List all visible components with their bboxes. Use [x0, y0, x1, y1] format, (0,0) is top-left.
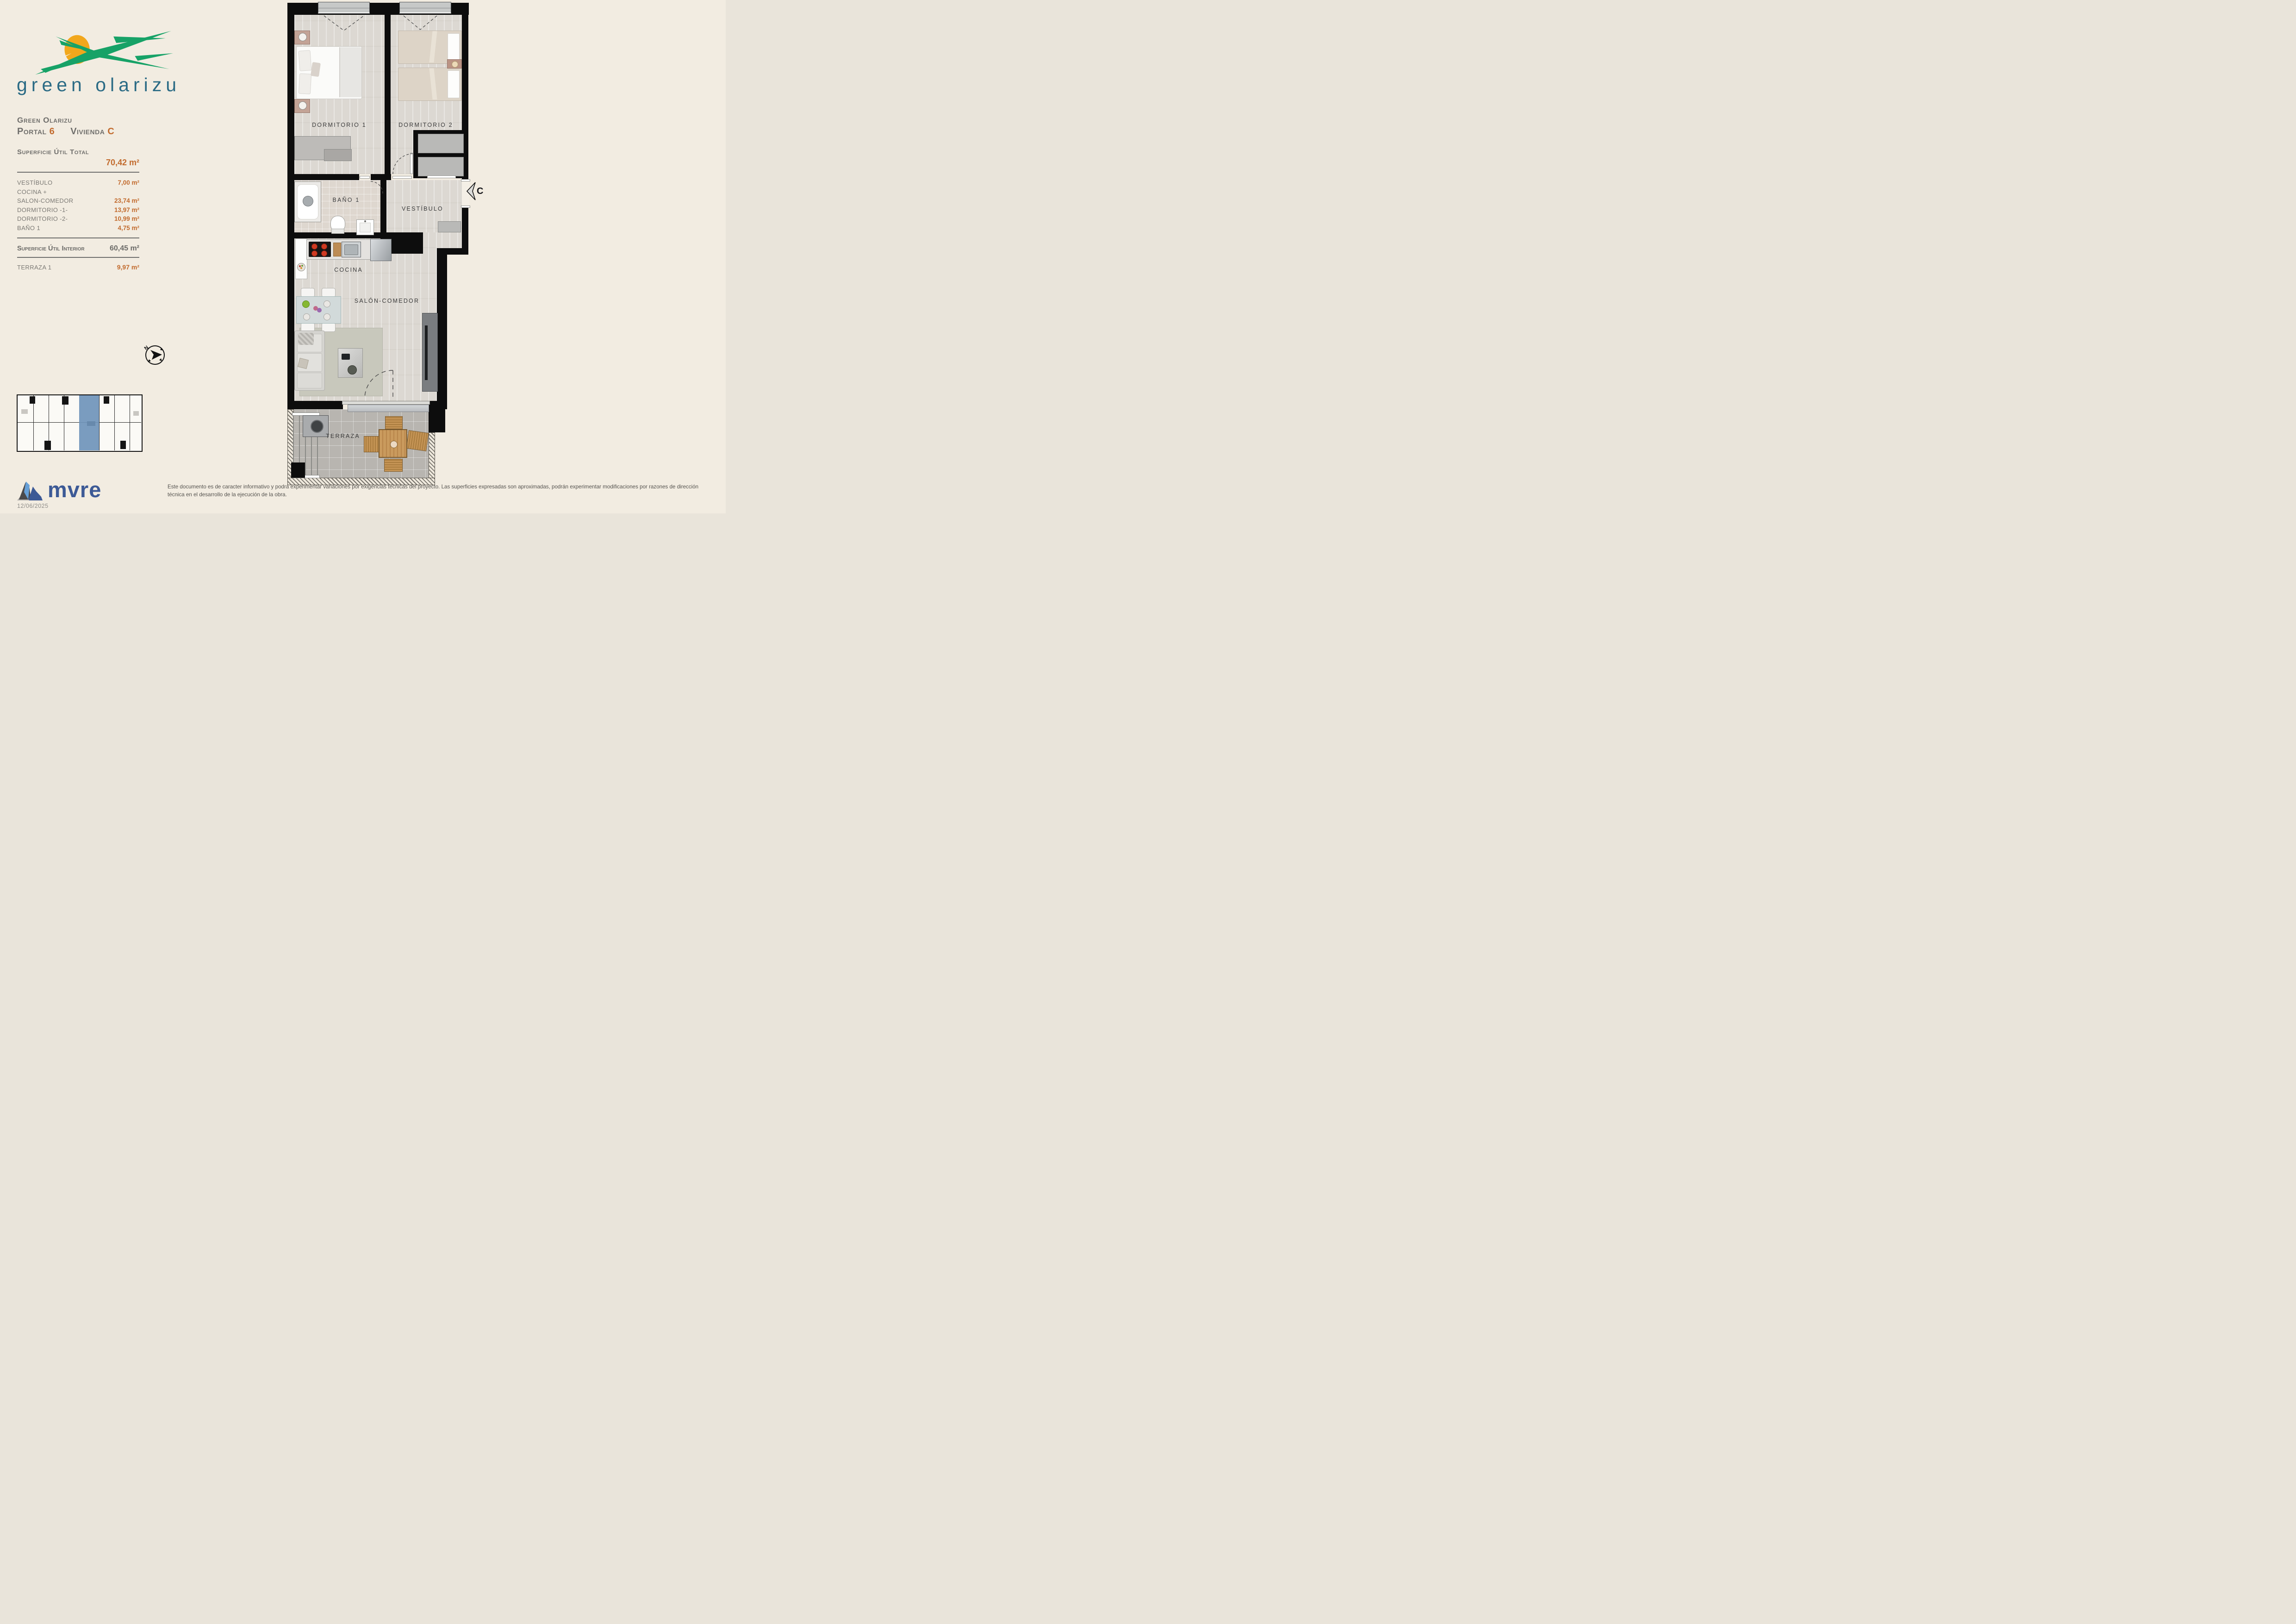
room-label-cocina: COCINA: [334, 267, 363, 273]
duvet-fold: [339, 47, 361, 97]
wall-under-bedroom-a: [294, 174, 359, 180]
fridge: [370, 239, 392, 261]
keyplan-furniture: [21, 409, 28, 414]
room-value: 13,97 m²: [114, 206, 139, 213]
room-label: BAÑO 1: [17, 225, 40, 231]
room-value: 4,75 m²: [118, 225, 139, 231]
divider: [17, 172, 139, 173]
table-row: DORMITORIO -2-10,99 m²: [17, 215, 139, 225]
interior-area-row: Superficie Útil Interior 60,45 m²: [17, 244, 139, 253]
burner-icon: [321, 250, 327, 256]
keyplan-core: [44, 441, 51, 450]
room-label-vestibulo: VESTÍBULO: [402, 206, 443, 212]
burner-icon: [311, 244, 317, 250]
compass-north-label: N: [143, 345, 150, 351]
bedroom2-door-leaf: [392, 176, 412, 179]
sliding-door-panel: [348, 405, 429, 412]
room-label: SALON-COMEDOR: [17, 197, 74, 204]
lamp-icon: [299, 101, 307, 110]
room-label-dormitorio2: DORMITORIO 2: [398, 122, 453, 128]
wall-right-living: [437, 248, 447, 409]
wall-living-bottom-left: [287, 401, 343, 409]
coffee-table: [338, 348, 363, 378]
keyplan-core: [104, 396, 109, 404]
pillow: [299, 73, 311, 94]
wall-bath-right: [380, 180, 386, 232]
nightstand: [294, 99, 310, 113]
cooktop: [309, 242, 331, 257]
entrance-letter: C: [477, 186, 483, 197]
terrace-wall-right: [429, 432, 435, 485]
kitchen-sink: [342, 242, 361, 257]
wall-left: [287, 3, 294, 409]
table-row: VESTÍBULO7,00 m²: [17, 179, 139, 188]
pillow: [298, 50, 311, 71]
keyplan-wall: [114, 395, 115, 450]
terrace-area-row: TERRAZA 1 9,97 m²: [17, 263, 139, 271]
terrace-table: [379, 429, 407, 458]
table-centerpiece-icon: [390, 441, 398, 448]
divider: [17, 237, 139, 238]
floorplan-document: green olarizu Green Olarizu Portal 6 Viv…: [0, 0, 726, 513]
flowers-icon: [317, 308, 322, 312]
toilet-tank: [331, 229, 344, 234]
vivienda-group: Vivienda C: [70, 126, 114, 137]
room-value: 7,00 m²: [118, 179, 139, 186]
pillow: [311, 62, 321, 77]
keyplan-wall: [130, 395, 130, 450]
terrace-area-value: 9,97 m²: [117, 263, 139, 271]
keyplan-core: [30, 396, 35, 404]
room-label: DORMITORIO -2-: [17, 215, 68, 222]
entrance-arrow-icon: [466, 182, 476, 200]
faucet-icon: [364, 220, 366, 222]
pillow: [448, 33, 460, 61]
tv-screen: [425, 325, 428, 380]
total-area-label: Superficie Útil Total: [17, 148, 139, 156]
divider: [17, 257, 139, 258]
room-label-salon: SALÓN-COMEDOR: [355, 298, 419, 304]
room-area-table: VESTÍBULO7,00 m² COCINA + SALON-COMEDOR2…: [17, 179, 139, 233]
key-plan: [17, 394, 143, 452]
interior-area-value: 60,45 m²: [110, 244, 139, 253]
tablet-icon: [342, 354, 350, 360]
entrance-jamb: [461, 206, 470, 208]
portal-number: 6: [50, 126, 55, 137]
washer-door-icon: [311, 420, 324, 433]
vivienda-label: Vivienda: [70, 126, 105, 137]
single-bed: [398, 68, 462, 101]
table-row: BAÑO 14,75 m²: [17, 225, 139, 234]
table-row: DORMITORIO -1-13,97 m²: [17, 206, 139, 216]
plate-icon: [303, 313, 310, 320]
terrace-chair: [364, 436, 380, 452]
room-label: COCINA +: [17, 188, 47, 195]
wardrobe: [324, 149, 352, 161]
wall-bedroom-divider: [385, 14, 391, 174]
project-name: Green Olarizu: [17, 116, 139, 125]
table-row: SALON-COMEDOR23,74 m²: [17, 197, 139, 206]
duvet-fold: [429, 31, 437, 62]
wall-terrace-corner: [429, 401, 445, 432]
dining-chair: [322, 288, 336, 297]
wall-right-entrance: [462, 206, 468, 255]
room-label-dormitorio1: DORMITORIO 1: [312, 122, 367, 128]
room-label-terraza: TERRAZA: [326, 433, 360, 439]
portal-label: Portal: [17, 126, 47, 137]
sliding-door-rail: [342, 401, 430, 405]
terrace-area-label: TERRAZA 1: [17, 264, 51, 271]
mvre-wordmark: mvre: [48, 477, 101, 502]
double-bed: [296, 46, 362, 99]
mvre-logo-icon: [17, 480, 47, 501]
fruit-dot: [300, 267, 302, 269]
burner-icon: [311, 250, 317, 256]
terrace-chair: [384, 459, 403, 472]
pillow: [448, 70, 460, 98]
bathtub: [294, 181, 321, 222]
burner-icon: [321, 244, 327, 250]
compass-icon: N: [143, 343, 167, 367]
room-label: VESTÍBULO: [17, 179, 53, 186]
window-bedroom1: [318, 2, 370, 13]
room-value: 23,74 m²: [114, 197, 139, 204]
lamp-icon: [452, 61, 458, 68]
wardrobe: [418, 157, 464, 176]
duvet-fold: [429, 68, 437, 100]
kitchen-tall-cabinet: [295, 238, 307, 279]
portal-vivienda-line: Portal 6 Vivienda C: [17, 126, 139, 137]
sofa-chaise: [297, 373, 322, 388]
vivienda-letter: C: [107, 126, 114, 137]
door-threshold: [427, 175, 456, 178]
window-bedroom2: [399, 2, 451, 13]
plate-icon: [324, 300, 330, 307]
sink-basin: [344, 244, 358, 255]
plaid-throw: [298, 333, 314, 345]
bedroom2-door-leaf: [410, 153, 413, 174]
dining-table: [296, 296, 341, 324]
legal-disclaimer: Este documento es de caracter informativ…: [168, 483, 716, 499]
keyplan-wall: [99, 395, 100, 450]
wall-under-bedroom-b: [371, 174, 391, 180]
portal-group: Portal 6: [17, 126, 55, 137]
terrace-chair: [385, 416, 403, 429]
terrace-chair: [406, 430, 429, 451]
keyplan-highlighted-unit: [79, 395, 99, 450]
shower-drain-icon: [303, 196, 313, 206]
room-label-bano: BAÑO 1: [332, 197, 360, 203]
dining-chair: [301, 288, 315, 297]
washing-machine: [303, 415, 329, 437]
table-row: COCINA +: [17, 188, 139, 198]
keyplan-core: [120, 441, 126, 449]
green-olarizu-wordmark: green olarizu: [17, 74, 180, 96]
green-olarizu-logo-icon: [31, 26, 176, 79]
wardrobe: [418, 134, 464, 153]
tv-unit: [422, 313, 438, 392]
keyplan-core: [62, 396, 68, 405]
total-area-value: 70,42 m²: [17, 158, 139, 168]
hall-cabinet: [438, 221, 461, 232]
entrance-jamb: [461, 179, 470, 181]
plate-icon: [324, 313, 330, 320]
cutting-board: [333, 243, 341, 256]
nightstand: [294, 31, 310, 44]
bath-door-leaf: [360, 176, 370, 179]
interior-area-label: Superficie Útil Interior: [17, 245, 85, 252]
room-label: DORMITORIO -1-: [17, 206, 68, 213]
nightstand: [447, 59, 462, 69]
unit-summary-panel: Green Olarizu Portal 6 Vivienda C Superf…: [17, 116, 139, 271]
sink: [356, 219, 374, 235]
sink-basin: [360, 223, 371, 232]
keyplan-furniture: [133, 411, 139, 416]
room-value: 10,99 m²: [114, 215, 139, 222]
sofa: [294, 331, 325, 391]
lamp-icon: [299, 33, 307, 41]
terrace-mat: [291, 462, 305, 478]
fruit-bowl-icon: [297, 263, 305, 271]
salad-plate-icon: [302, 300, 310, 308]
decor-bowl-icon: [348, 365, 357, 375]
document-date: 12/06/2025: [17, 503, 49, 509]
fruit-dot: [301, 265, 303, 267]
